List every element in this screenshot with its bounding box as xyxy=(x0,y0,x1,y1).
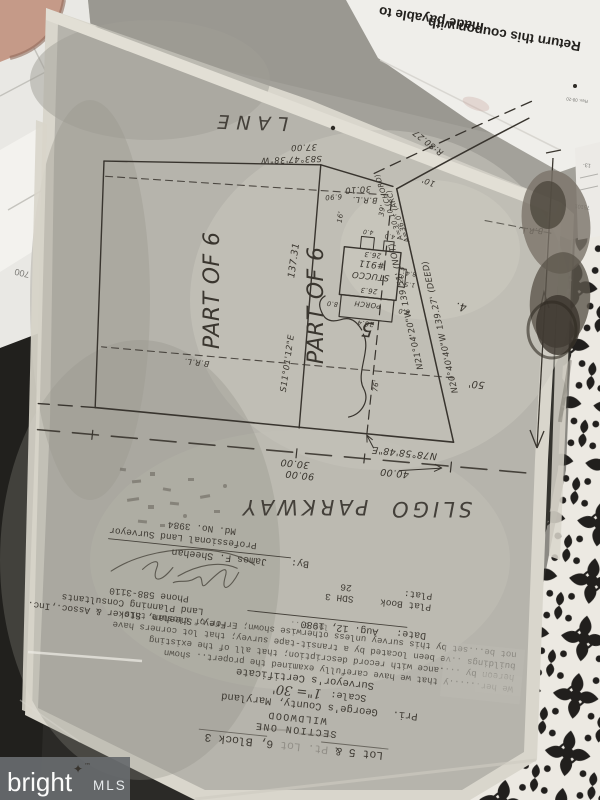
brl-label-rear: B.R.L. xyxy=(352,195,378,205)
by-label: By: xyxy=(291,556,310,569)
offset-50: 50' xyxy=(468,377,486,390)
parcel-part-of-6-a: PART OF 6 xyxy=(304,247,329,365)
dim-3010: 30.10 xyxy=(344,183,371,195)
dim-690: 6.90 xyxy=(324,192,342,201)
dim-house-15: 1.5 xyxy=(404,280,415,288)
watermark: bright ✦ ™ MLS xyxy=(0,757,130,800)
plat-value: 26 xyxy=(340,581,353,593)
watermark-star-icon: ✦ xyxy=(73,762,83,776)
street-lane: LANE xyxy=(210,110,289,135)
dim-37: 37.00 xyxy=(290,141,317,152)
offset-76: 76' xyxy=(371,379,380,392)
dim-step-40-b: 4.0 xyxy=(362,228,373,236)
watermark-brand: bright xyxy=(7,767,73,797)
receipt-text-1: 13- xyxy=(583,161,592,168)
street-parkway: PARKWAY xyxy=(239,495,368,519)
watermark-tm: ™ xyxy=(84,762,91,770)
dim-house-84: 8.4 xyxy=(405,269,416,277)
offset-16: 16' xyxy=(336,211,346,224)
dim-porch-80-right: 8.0 xyxy=(326,299,338,308)
dim-porch-80-left: 8.0 xyxy=(398,307,410,316)
offset-39: 39' xyxy=(378,204,388,217)
lot-4-label: 4. xyxy=(455,300,468,314)
watermark-mls: MLS xyxy=(93,778,127,793)
rear-bearing: S83°47'38"W xyxy=(260,153,322,165)
street-sligo: SLIGO xyxy=(388,497,472,521)
parcel-part-of-6-b: PART OF 6 xyxy=(200,232,225,350)
dim-step-40-a: 4.0 xyxy=(384,232,395,240)
photo-of-survey-plat: 700 PA Return this coupon with made paya… xyxy=(0,0,600,800)
